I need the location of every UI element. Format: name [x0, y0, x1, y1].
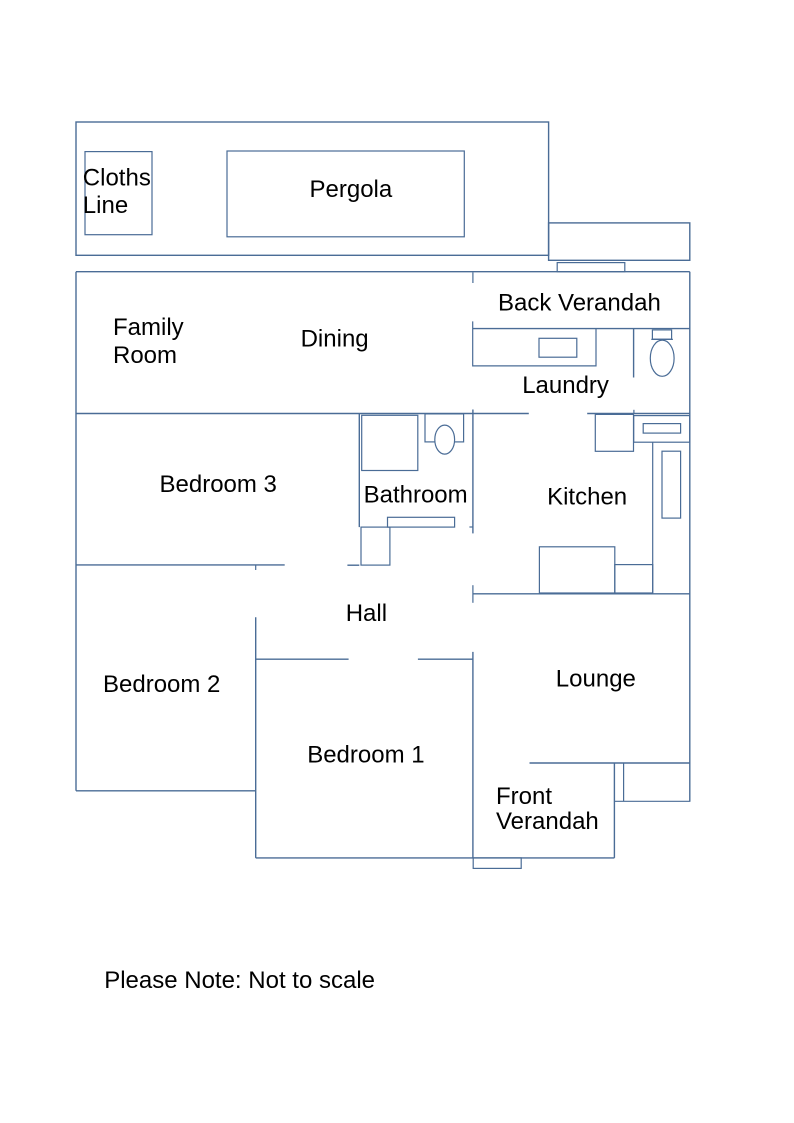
svg-text:Back Verandah: Back Verandah — [498, 289, 661, 316]
svg-text:Laundry: Laundry — [522, 372, 609, 399]
svg-text:Lounge: Lounge — [556, 666, 636, 693]
svg-text:Family: Family — [113, 314, 184, 341]
svg-text:Please Note: Not to scale: Please Note: Not to scale — [104, 967, 375, 994]
svg-text:Bedroom 3: Bedroom 3 — [160, 471, 277, 498]
svg-text:Front: Front — [496, 783, 552, 810]
svg-text:Verandah: Verandah — [496, 808, 599, 835]
svg-text:Bathroom: Bathroom — [364, 481, 468, 508]
svg-text:Room: Room — [113, 342, 177, 369]
svg-text:Pergola: Pergola — [310, 176, 393, 203]
svg-text:Line: Line — [83, 192, 128, 219]
svg-text:Hall: Hall — [346, 600, 387, 627]
svg-text:Bedroom 1: Bedroom 1 — [307, 742, 424, 769]
svg-text:Cloths: Cloths — [83, 165, 151, 192]
svg-text:Dining: Dining — [301, 325, 369, 352]
svg-text:Bedroom 2: Bedroom 2 — [103, 671, 220, 698]
svg-text:Kitchen: Kitchen — [547, 483, 627, 510]
